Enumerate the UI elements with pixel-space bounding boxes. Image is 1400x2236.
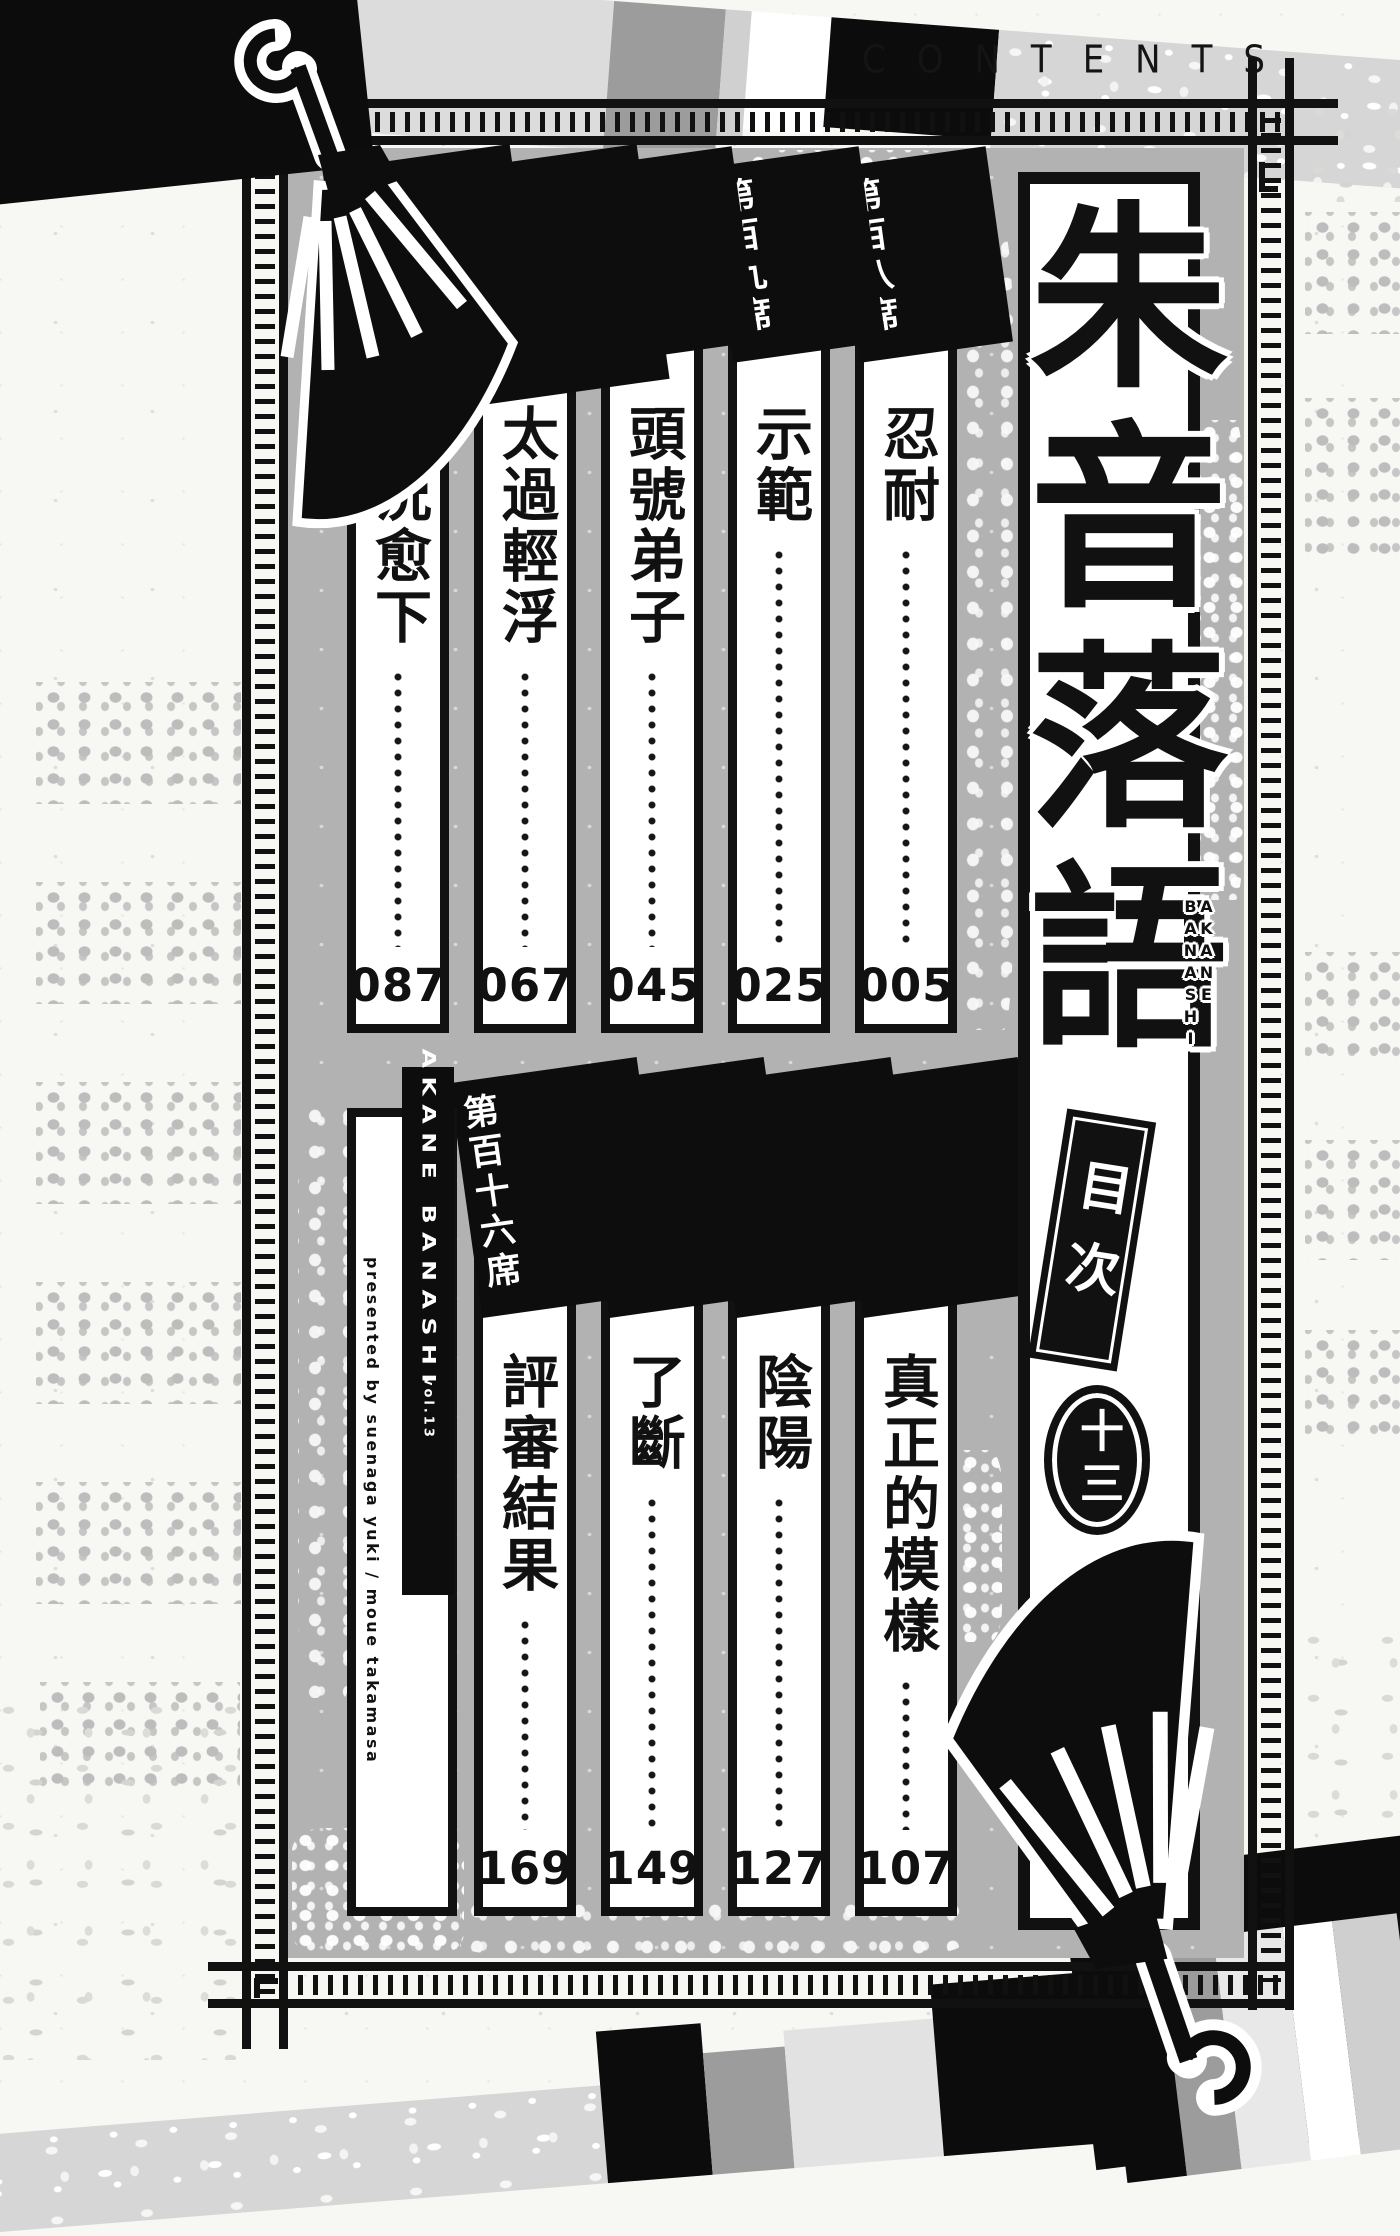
chapter-page-number: 087 <box>350 959 447 1012</box>
chapter-page-number: 045 <box>604 959 701 1012</box>
volume-badge-number: 十三 <box>1075 1408 1119 1512</box>
chapter-page-number: 169 <box>477 1842 574 1895</box>
chapter-title: 示範 <box>749 404 810 526</box>
series-logo-strip: AKANE BANASHI vol.13 <box>402 1067 454 1595</box>
romaji-akane: AKANE <box>1198 897 1214 1051</box>
chapter-title: 忍耐 <box>876 404 937 526</box>
dot-band <box>1305 1140 1400 1260</box>
dotted-leader <box>902 550 910 947</box>
dotted-leader <box>394 672 402 947</box>
dot-band <box>1305 398 1400 558</box>
dot-band <box>1305 1330 1400 1445</box>
chapter-page-number: 005 <box>858 959 955 1012</box>
frame-corner-mark <box>254 1978 278 1998</box>
dot-band <box>36 1082 241 1204</box>
dotted-leader <box>775 1498 783 1830</box>
chapter-title: 陰陽 <box>749 1352 810 1474</box>
contents-heading: CONTENTS <box>862 38 1296 83</box>
series-title: 朱音落語 <box>1010 194 1208 1074</box>
chapter-page-number: 127 <box>731 1842 828 1895</box>
dot-band <box>36 882 241 1004</box>
presented-by-text: presented by suenaga yuki / moue takamas… <box>364 1257 380 1907</box>
chapter-title: 了斷 <box>622 1352 683 1474</box>
series-logo-text: AKANE BANASHI <box>419 1048 438 1391</box>
series-title-romaji: AKANE BANASHI <box>1182 897 1214 1051</box>
frame-corner-mark <box>1259 162 1278 192</box>
chapter-number-chip: 第百十六席 <box>449 1057 669 1318</box>
chapter-title: 評審結果 <box>495 1352 556 1596</box>
stripe-block <box>703 2047 795 2175</box>
chapter-title: 頭號弟子 <box>622 404 683 648</box>
chapter-page-number: 149 <box>604 1842 701 1895</box>
dotted-leader <box>648 672 656 947</box>
credits-column: AKANE BANASHI vol.13 presented by suenag… <box>347 1108 457 1916</box>
dot-band <box>36 1482 241 1604</box>
dot-band <box>36 1282 241 1404</box>
dotted-leader <box>775 550 783 947</box>
chapter-page-number: 067 <box>477 959 574 1012</box>
dot-band <box>1305 212 1400 334</box>
dotted-leader <box>521 1620 529 1830</box>
folding-fan-icon <box>875 1506 1400 2136</box>
chapter-page-number: 025 <box>731 959 828 1012</box>
dotted-leader <box>521 672 529 947</box>
dotted-leader <box>648 1498 656 1830</box>
toc-label: 目次 <box>1053 1155 1132 1325</box>
chapter-column: 第百十六席 評審結果 169 <box>474 1108 576 1916</box>
marble-texture-block <box>0 2085 608 2236</box>
folding-fan-icon <box>70 5 570 545</box>
toc-label-chip: 目次 <box>1028 1109 1156 1372</box>
dot-band <box>36 682 241 804</box>
romaji-banashi: BANASHI <box>1182 897 1198 1051</box>
white-dots-patch <box>298 1098 354 1698</box>
stripe-block <box>596 2023 713 2183</box>
dot-band <box>1305 952 1400 1070</box>
